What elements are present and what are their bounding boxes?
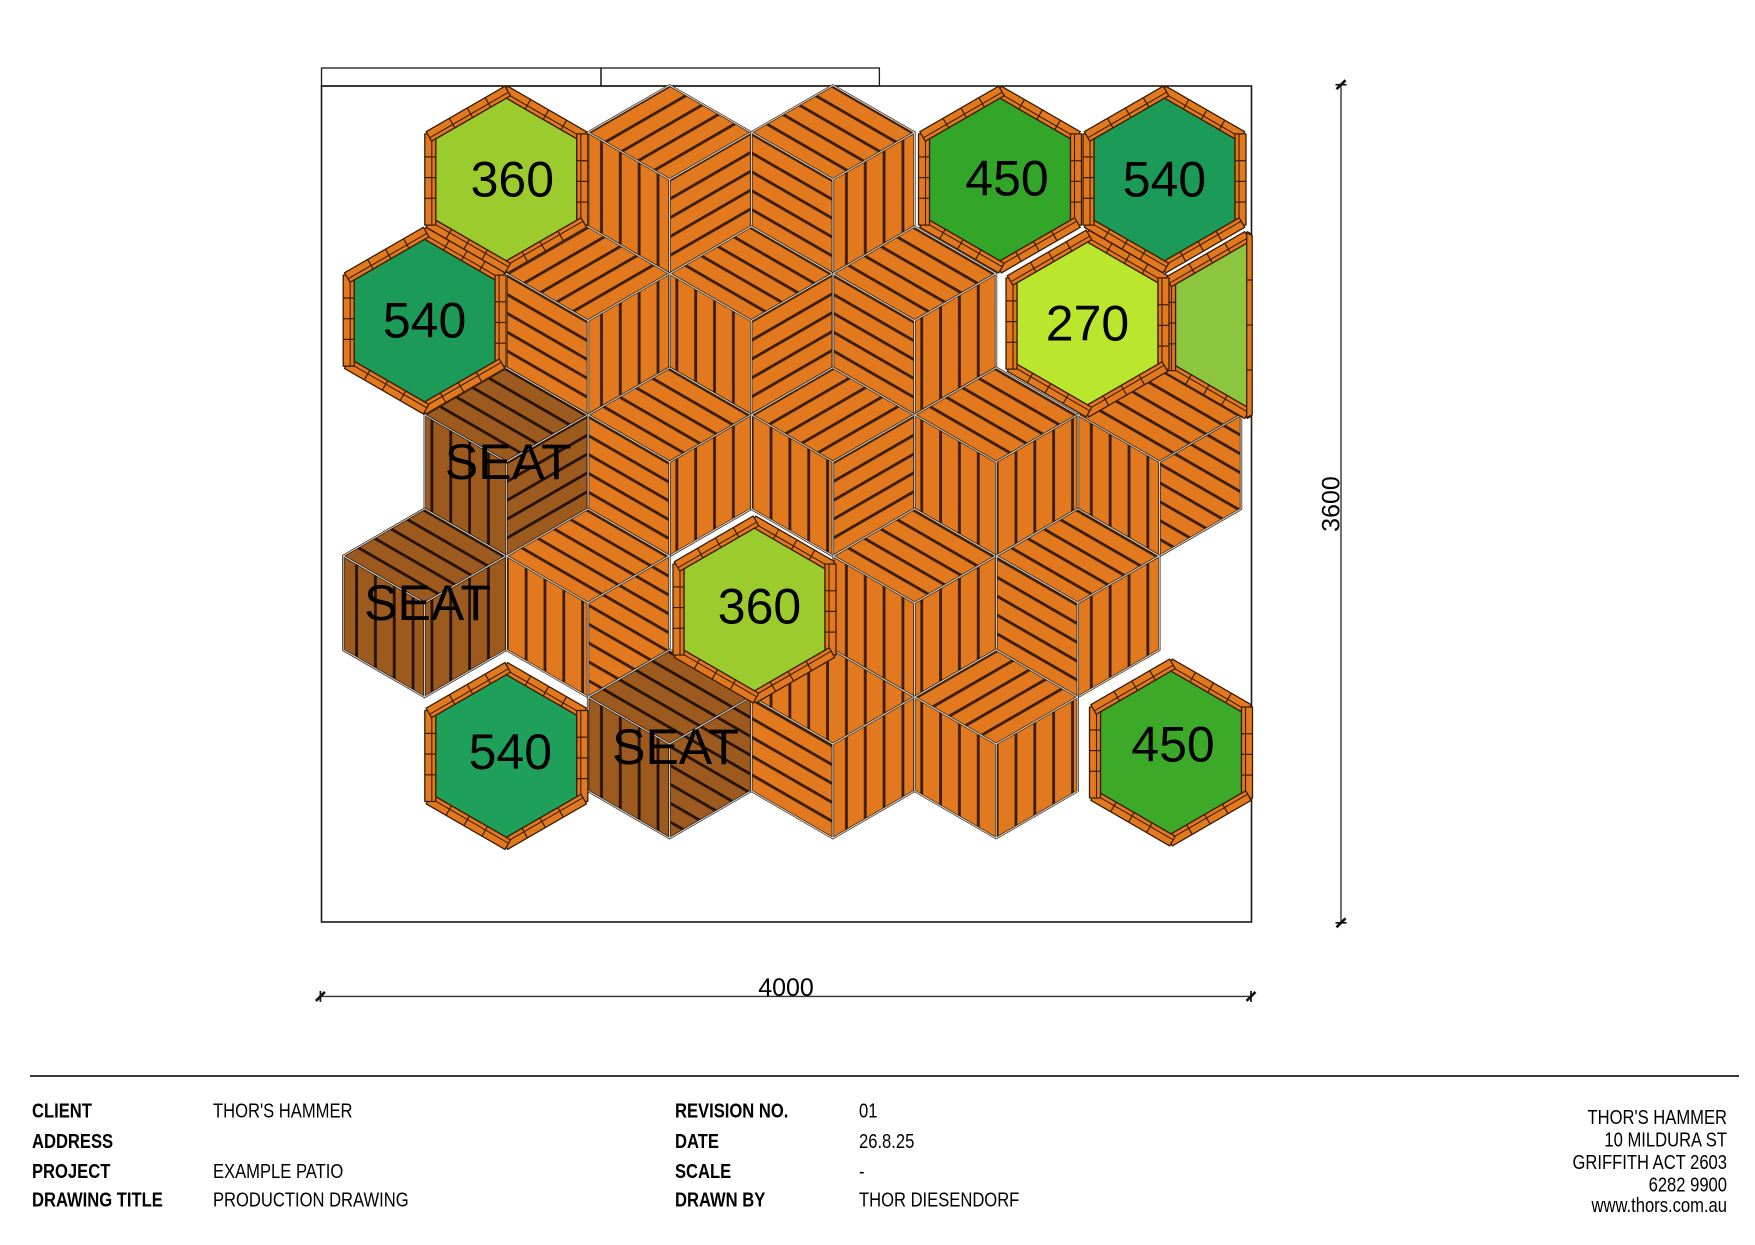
svg-text:540: 540: [469, 724, 552, 780]
svg-text:10 MILDURA ST: 10 MILDURA ST: [1604, 1128, 1727, 1151]
svg-text:450: 450: [1131, 717, 1214, 773]
svg-text:REVISION NO.: REVISION NO.: [675, 1099, 788, 1122]
svg-text:www.thors.com.au: www.thors.com.au: [1591, 1194, 1727, 1217]
svg-text:26.8.25: 26.8.25: [859, 1130, 914, 1153]
svg-text:01: 01: [859, 1099, 877, 1122]
svg-text:270: 270: [1046, 296, 1129, 352]
svg-text:ADDRESS: ADDRESS: [32, 1130, 113, 1153]
svg-text:PRODUCTION DRAWING: PRODUCTION DRAWING: [213, 1188, 409, 1211]
svg-text:540: 540: [383, 293, 466, 349]
svg-text:SEAT: SEAT: [364, 575, 491, 631]
svg-text:DATE: DATE: [675, 1130, 719, 1153]
svg-text:450: 450: [965, 151, 1048, 207]
svg-text:SEAT: SEAT: [445, 434, 572, 490]
svg-text:6282 9900: 6282 9900: [1649, 1173, 1727, 1196]
svg-text:CLIENT: CLIENT: [32, 1099, 93, 1122]
svg-text:EXAMPLE PATIO: EXAMPLE PATIO: [213, 1160, 343, 1183]
svg-text:THOR'S HAMMER: THOR'S HAMMER: [213, 1099, 353, 1122]
svg-text:360: 360: [471, 152, 554, 208]
svg-text:SEAT: SEAT: [612, 719, 739, 775]
svg-text:4000: 4000: [758, 974, 814, 1002]
svg-text:3600: 3600: [1318, 476, 1346, 532]
svg-text:DRAWING TITLE: DRAWING TITLE: [32, 1188, 163, 1211]
svg-text:THOR DIESENDORF: THOR DIESENDORF: [859, 1188, 1019, 1211]
svg-text:GRIFFITH ACT 2603: GRIFFITH ACT 2603: [1572, 1151, 1727, 1174]
svg-text:PROJECT: PROJECT: [32, 1160, 111, 1183]
svg-text:540: 540: [1123, 152, 1206, 208]
svg-text:360: 360: [718, 579, 801, 635]
svg-text:DRAWN BY: DRAWN BY: [675, 1188, 765, 1211]
svg-text:THOR'S HAMMER: THOR'S HAMMER: [1587, 1106, 1727, 1129]
svg-text:SCALE: SCALE: [675, 1160, 731, 1183]
svg-text:-: -: [859, 1160, 865, 1183]
